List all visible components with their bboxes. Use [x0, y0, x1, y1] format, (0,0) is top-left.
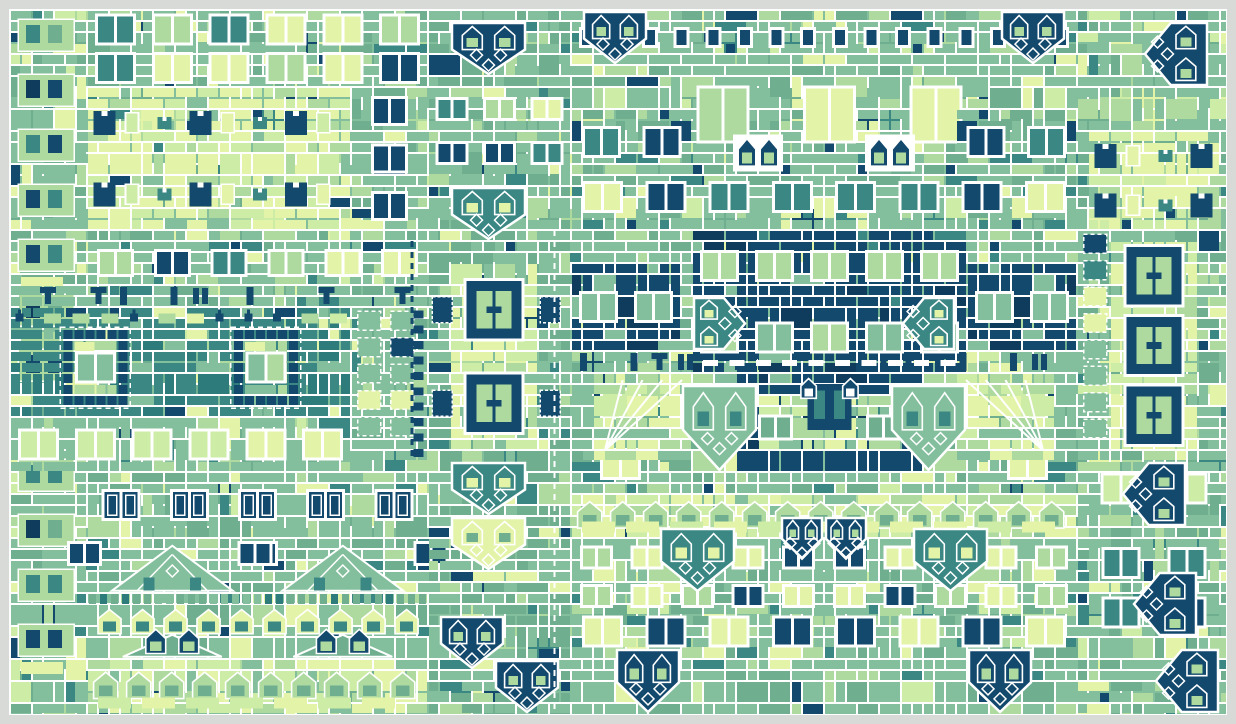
mosaic-canvas: [0, 0, 1236, 724]
mosaic-artwork-frame: [0, 0, 1236, 724]
